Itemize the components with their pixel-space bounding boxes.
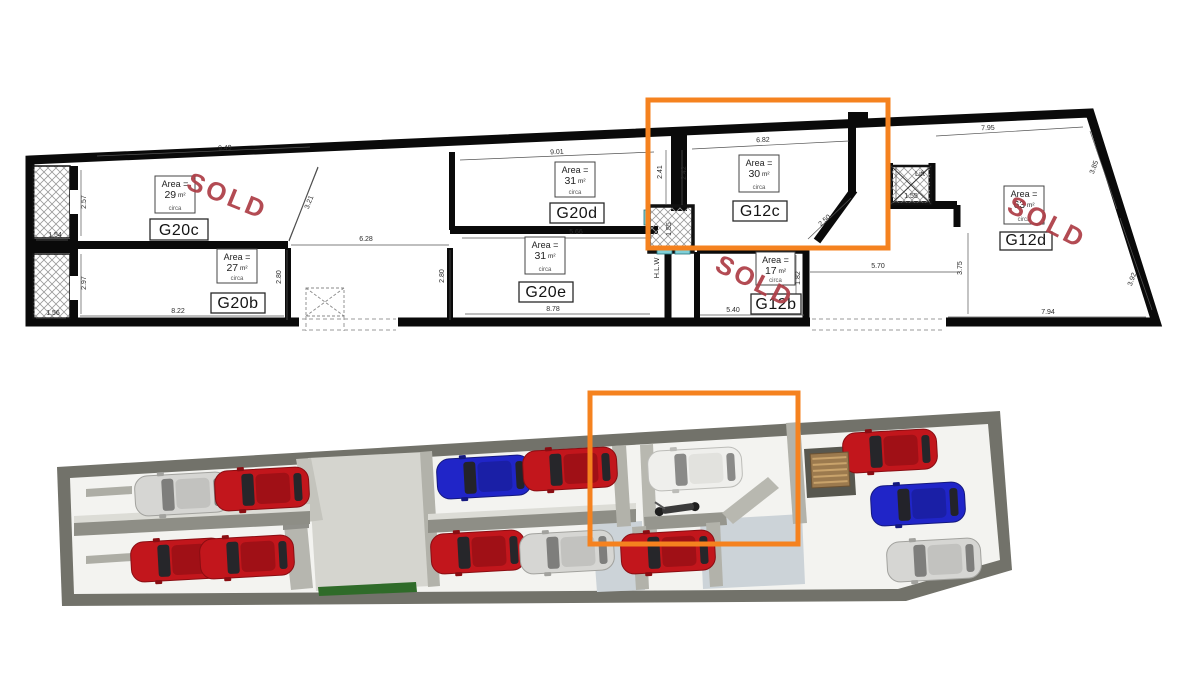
dimension-label: 8.78 [546,306,560,313]
area-note: circa [569,190,582,196]
dimension-label: 3.92 [1127,272,1138,287]
car-blue-5 [436,451,532,502]
dimension-label: 7.95 [981,125,995,132]
dimension-label: 5.66 [569,229,583,236]
dimension-label: 5.40 [726,307,740,314]
plan-void-box [306,288,344,316]
dimension-line [1120,218,1152,310]
drawing-canvas: 9.493.212.571.542.971.568.226.282.802.80… [0,0,1180,700]
car-red-6 [522,443,618,494]
plan-top-wall-jog [848,112,868,122]
dimension-label: 6.82 [756,137,770,144]
car-red-7 [430,526,526,577]
floor-plan: 9.493.212.571.542.971.568.226.282.802.80… [30,112,1156,331]
dimension-label: 5.70 [871,263,885,270]
dimension-label: 2.80 [439,269,446,283]
car-red-2 [214,463,310,514]
car-red-4 [199,531,295,582]
unit-G20b: Area =27 m²circaG20b [211,249,265,313]
dimension-label: 2.57 [81,195,88,209]
dimension-label: 9.49 [218,145,232,153]
area-note: circa [231,276,244,282]
lift-label: Lift [915,169,926,178]
unit-G12c: Area =30 m²circaG12c [733,155,787,221]
dimension-label: 2.42 [681,166,688,180]
dimension-label: 7.94 [1041,309,1055,316]
dimension-label: 9.01 [550,149,564,157]
dimension-label: 1.55 [666,222,673,236]
area-prefix: Area = [762,255,789,265]
unit-G20d: Area =31 m²circaG20d [550,162,604,223]
shaft-label: H.L.W [652,257,661,279]
ramp [308,452,432,591]
unit-label-G12c: G12c [740,203,780,220]
unit-label-G20e: G20e [525,284,566,301]
unit-label-G20b: G20b [217,295,258,312]
stairs [810,452,850,488]
screenshot-root: 9.493.212.571.542.971.568.226.282.802.80… [0,0,1180,700]
area-note: circa [753,185,766,191]
car-silver-8 [519,526,615,577]
car-blue-12 [870,478,966,529]
dimension-label: 3.75 [957,261,964,275]
car-red-11 [842,425,938,476]
car-red-10 [620,526,716,577]
dimension-label: 2.97 [81,276,88,290]
dimension-label: 3.85 [1089,160,1100,175]
area-note: circa [169,206,182,212]
dimension-line [936,127,1083,136]
plan-hatched-stores [30,166,78,318]
area-prefix: Area = [224,252,251,262]
area-prefix: Area = [562,165,589,175]
area-prefix: Area = [532,240,559,250]
unit-label-G20c: G20c [159,222,199,239]
dimension-label: 1.55 [904,193,918,200]
plan-opening-right [810,313,946,331]
sold-stamp-G20c: SOLD [183,166,272,225]
unit-label-G20d: G20d [556,205,597,222]
car-silver-13 [886,534,982,585]
plan-sold-stamps: SOLDSOLDSOLD [183,166,1092,313]
car-white-9 [647,443,743,494]
dimension-label: 3.21 [304,195,316,210]
dimension-label: 1.82 [795,271,802,285]
area-note: circa [539,267,552,273]
dimension-line [289,168,318,240]
dimension-label: 2.80 [276,270,283,284]
unit-G20e: Area =31 m²circaG20e [519,237,573,302]
dimension-label: 1.56 [46,310,60,317]
dimension-label: 2.41 [657,165,664,179]
dimension-label: 6.28 [359,236,373,243]
dimension-line [692,141,849,149]
area-prefix: Area = [746,158,773,168]
dimension-label: 1.54 [48,232,62,239]
dimension-label: 8.22 [171,308,185,315]
